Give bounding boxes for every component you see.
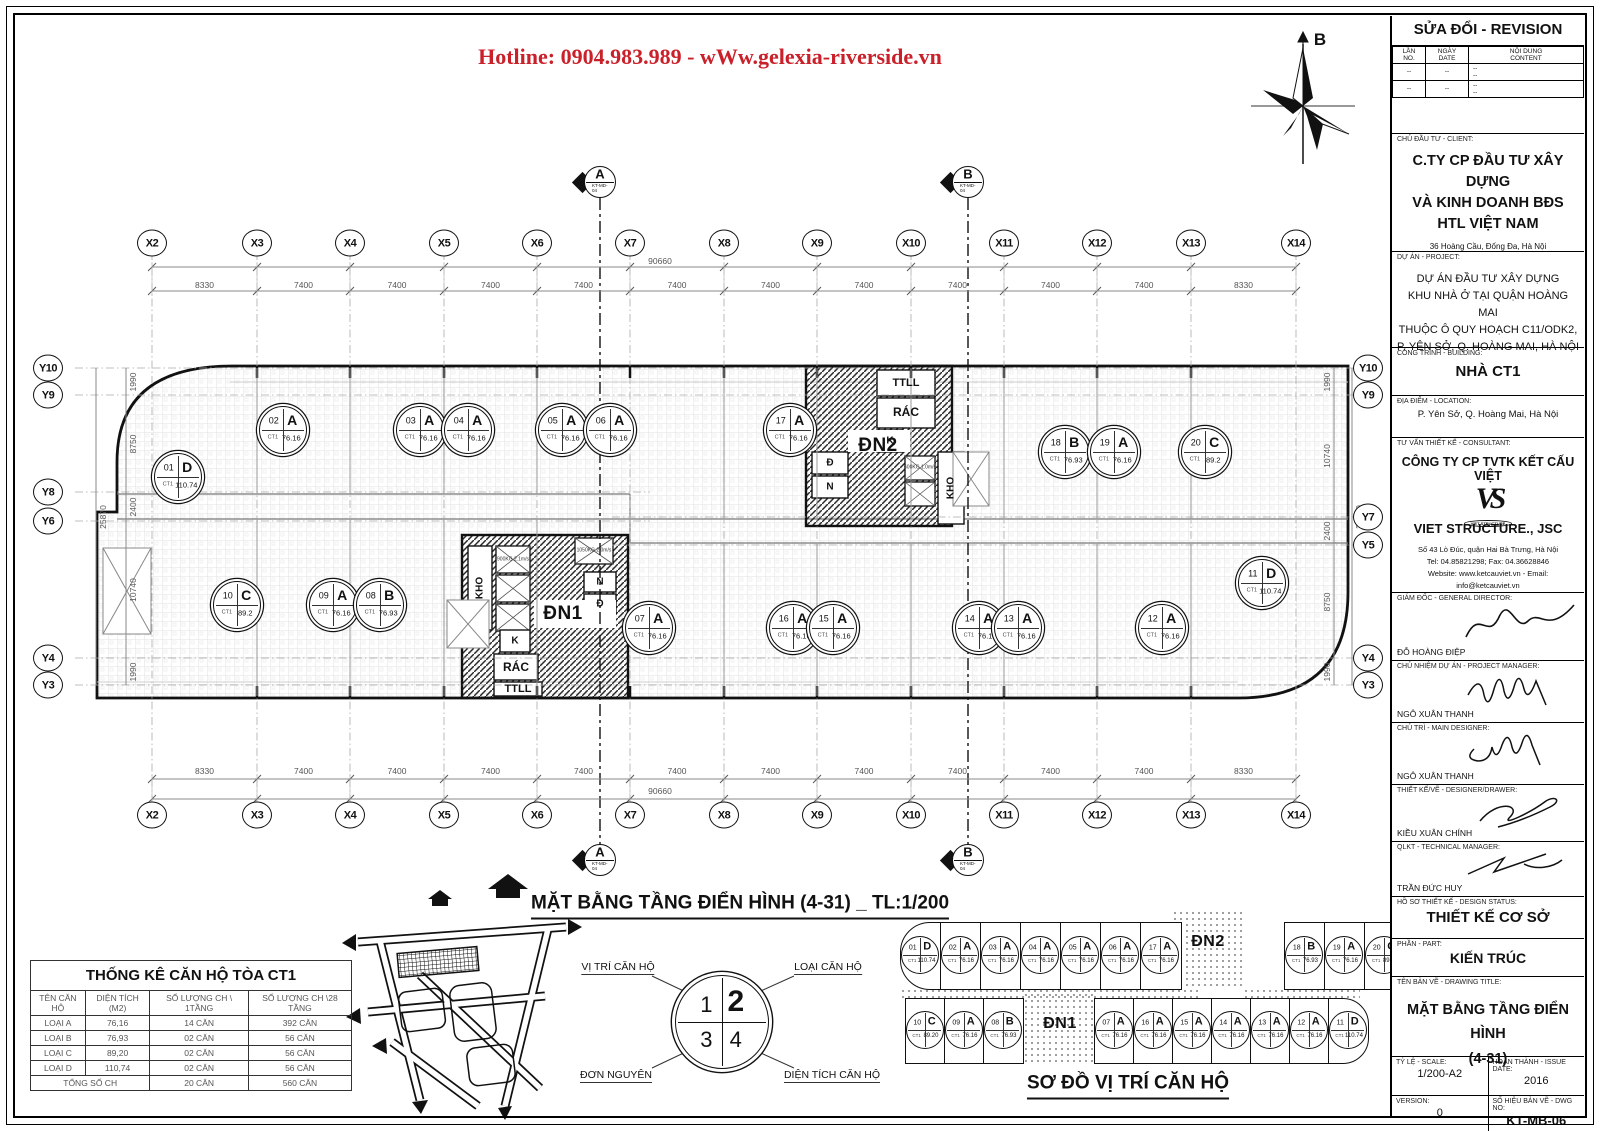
dim-y-right: 8750: [1322, 592, 1332, 611]
dim-y-left: 1990: [128, 662, 138, 681]
unit-u-ct: CT1: [1101, 1034, 1110, 1039]
client-line1: C.TY CP ĐẦU TƯ XÂY DỰNG: [1397, 151, 1579, 193]
unit-u-ty: A: [1195, 1017, 1203, 1028]
grid-bubble-X14-bottom: X14: [1281, 802, 1311, 829]
drawer-section: THIẾT KẾ/VẼ - DESIGNER/DRAWER: KIỀU XUÂN…: [1392, 785, 1584, 842]
unit-u-no: 01: [164, 463, 174, 472]
unit-u-ct: CT1: [634, 634, 644, 640]
unit-u-ct: CT1: [1148, 959, 1157, 964]
dim-x-top: 7400: [388, 280, 407, 290]
dim-x-bottom: 7400: [481, 766, 500, 776]
plan-title: MẶT BẰNG TẦNG ĐIỂN HÌNH (4-31) _ TL:1/20…: [531, 893, 949, 920]
designer-name: NGÔ XUÂN THANH: [1397, 771, 1474, 781]
legend-q2: 2: [727, 985, 744, 1019]
unit-u-ar: 76.16: [1307, 1033, 1322, 1039]
drawing-sheet: Hotline: 0904.983.989 - wWw.gelexia-rive…: [0, 0, 1600, 1131]
grid-bubble-X9-top: X9: [802, 230, 832, 257]
dim-x-top: 7400: [294, 280, 313, 290]
dim-y-right: 1990: [1322, 662, 1332, 681]
grid-bubble-X3-bottom: X3: [242, 802, 272, 829]
unit-u-no: 20: [1373, 944, 1381, 951]
dim-x-top: 7400: [1135, 280, 1154, 290]
grid-bubble-X7-top: X7: [615, 230, 645, 257]
unit-u-ty: D: [182, 460, 192, 474]
unit-u-no: 15: [819, 614, 829, 623]
grid-bubble-X6-top: X6: [522, 230, 552, 257]
pm-section: CHỦ NHIỆM DỰ ÁN - PROJECT MANAGER: NGÔ X…: [1392, 661, 1584, 723]
unit-u-ar: 89.2: [238, 610, 253, 618]
unit-u-ty: A: [337, 588, 347, 602]
unit-u-ct: CT1: [453, 436, 463, 442]
dim-x-bottom: 7400: [574, 766, 593, 776]
unit-circle-03: 03ACT176.16: [396, 406, 444, 454]
unit-u-no: 16: [1141, 1019, 1149, 1026]
grid-bubble-X8-bottom: X8: [709, 802, 739, 829]
dim-x-top: 7400: [668, 280, 687, 290]
grid-bubble-X8-top: X8: [709, 230, 739, 257]
unit-circle-10: 10CCT189.20: [906, 1011, 944, 1049]
unit-u-no: 02: [269, 416, 279, 425]
unit-u-ar: 76.16: [1343, 958, 1358, 964]
drawer-name: KIỀU XUÂN CHÍNH: [1397, 828, 1472, 838]
room-ttll-dn2: TTLL: [893, 377, 920, 389]
grid-bubble-X10-bottom: X10: [896, 802, 926, 829]
unit-u-ty: A: [963, 942, 971, 953]
unit-u-ar: 76.16: [1112, 1033, 1127, 1039]
director-section: GIÁM ĐỐC - GENERAL DIRECTOR: ĐỖ HOÀNG ĐI…: [1392, 593, 1584, 661]
dim-x-top: 7400: [948, 280, 967, 290]
lift-label-dn2: 600KG 1.0m/s: [904, 465, 936, 471]
locdgm-dn2-label: ĐN2: [1191, 933, 1225, 951]
revision-table: LẦNNO. NGÀYDATE NỘI DUNGCONTENT ---- ---…: [1392, 46, 1584, 98]
dim-x-top: 8330: [1234, 280, 1253, 290]
unit-circle-12: 12ACT176.16: [1138, 604, 1186, 652]
unit-u-no: 11: [1337, 1019, 1344, 1026]
unit-u-ty: A: [1163, 942, 1171, 953]
unit-circle-13: 13ACT176.16: [994, 604, 1042, 652]
unit-u-ar: 76.16: [419, 435, 438, 443]
unit-u-ty: A: [1083, 942, 1091, 953]
unit-circle-09: 09ACT176.16: [945, 1011, 983, 1049]
unit-u-ar: 76.16: [1229, 1033, 1244, 1039]
unit-u-ar: 76.16: [1079, 958, 1094, 964]
section-marker-B: BKT-MD-04: [952, 844, 984, 876]
unit-u-ty: A: [287, 413, 297, 427]
unit-u-no: 03: [406, 416, 416, 425]
unit-u-ar: 76.93: [1001, 1033, 1016, 1039]
dim-x-bottom: 8330: [1234, 766, 1253, 776]
grid-bubble-Y10-left: Y10: [33, 355, 63, 382]
unit-u-ty: B: [1069, 435, 1079, 449]
signature-director: [1460, 601, 1580, 645]
unit-circle-16: 16ACT176.16: [1134, 1011, 1172, 1049]
unit-u-ty: A: [614, 413, 624, 427]
unit-circle-02: 02ACT176.16: [259, 406, 307, 454]
grid-bubble-X2-top: X2: [137, 230, 167, 257]
unit-u-ct: CT1: [1292, 959, 1301, 964]
unit-u-ct: CT1: [1332, 959, 1341, 964]
compass-north-label: B: [1314, 30, 1326, 50]
legend-q1: 1: [700, 992, 712, 1018]
unit-u-no: 14: [1219, 1019, 1227, 1026]
grid-bubble-X13-bottom: X13: [1176, 802, 1206, 829]
grid-bubble-Y4-right: Y4: [1353, 645, 1383, 672]
unit-u-ar: 76.16: [1017, 633, 1036, 641]
legend-label-unit: ĐƠN NGUYÊN: [580, 1069, 652, 1083]
room-kho-dn1: KHO: [475, 577, 486, 599]
signature-designer: [1460, 731, 1580, 771]
grid-bubble-Y10-right: Y10: [1353, 355, 1383, 382]
unit-u-ty: D: [1266, 566, 1276, 580]
unit-u-ct: CT1: [778, 634, 788, 640]
unit-u-ar: 110.74: [1259, 588, 1281, 596]
unit-u-ar: 76.16: [648, 633, 667, 641]
unit-circle-19: 19ACT176.16: [1090, 428, 1138, 476]
room-kho-dn2: KHO: [946, 477, 957, 499]
unit-u-no: 18: [1293, 944, 1301, 951]
unit-u-ct: CT1: [1099, 458, 1109, 464]
unit-u-ty: A: [794, 413, 804, 427]
locdgm-dn1-label: ĐN1: [1043, 1015, 1077, 1033]
unit-u-ty: A: [1117, 1017, 1125, 1028]
section-marker-B: BKT-MD-04: [952, 166, 984, 198]
unit-u-ar: 89.20: [923, 1033, 938, 1039]
unit-u-ty: C: [928, 1017, 936, 1028]
unit-u-ar: 76.16: [332, 610, 351, 618]
stats-row: LOẠI D110,7402 CĂN56 CĂN: [31, 1061, 352, 1076]
grid-bubble-Y7-right: Y7: [1353, 504, 1383, 531]
unit-u-ar: 76.16: [1268, 1033, 1283, 1039]
unit-u-ar: 76.16: [1039, 958, 1054, 964]
stats-row: LOẠI B76,9302 CĂN56 CĂN: [31, 1031, 352, 1046]
dim-x-bottom: 7400: [388, 766, 407, 776]
unit-u-ct: CT1: [948, 959, 957, 964]
title-block: SỬA ĐỔI - REVISION LẦNNO. NGÀYDATE NỘI D…: [1390, 16, 1584, 1116]
dim-x-bottom: 7400: [948, 766, 967, 776]
unit-u-ct: CT1: [318, 611, 328, 617]
pm-name: NGÔ XUÂN THANH: [1397, 709, 1474, 719]
unit-u-ar: 76.93: [1303, 958, 1318, 964]
unit-circle-10: 10CCT189.2: [213, 581, 261, 629]
unit-u-no: 11: [1248, 569, 1257, 578]
unit-circle-02: 02ACT176.16: [941, 936, 979, 974]
signature-pm: [1460, 669, 1580, 709]
unit-circle-19: 19ACT176.16: [1325, 936, 1363, 974]
unit-u-ar: 110.74: [175, 482, 197, 490]
unit-u-ty: A: [566, 413, 576, 427]
unit-u-no: 07: [1102, 1019, 1110, 1026]
room-ttll-dn1: TTLL: [505, 683, 532, 695]
signature-qlkt: [1460, 850, 1580, 884]
unit-u-ty: C: [1209, 435, 1219, 449]
unit-circle-18: 18BCT176.93: [1041, 428, 1089, 476]
unit-u-ct: CT1: [1247, 589, 1257, 595]
main-designer-section: CHỦ TRÌ - MAIN DESIGNER: NGÔ XUÂN THANH: [1392, 723, 1584, 785]
unit-u-ct: CT1: [1140, 1034, 1149, 1039]
unit-u-no: 12: [1148, 614, 1158, 623]
unit-u-ty: A: [1347, 942, 1355, 953]
unit-circle-20: 20CCT189.2: [1181, 428, 1229, 476]
apartment-stats-table: THỐNG KÊ CĂN HỘ TÒA CT1 TÊN CĂN HỘDIỆN T…: [30, 960, 352, 1091]
unit-circle-05: 05ACT176.16: [538, 406, 586, 454]
legend-label-type: LOẠI CĂN HỘ: [794, 961, 862, 975]
dim-y-right: 1990: [1322, 372, 1332, 391]
dim-x-bottom: 7400: [668, 766, 687, 776]
unit-u-ct: CT1: [1335, 1034, 1344, 1039]
unit-u-ty: A: [653, 611, 663, 625]
revision-title: SỬA ĐỔI - REVISION: [1392, 16, 1584, 46]
grid-bubble-Y5-right: Y5: [1353, 532, 1383, 559]
unit-u-no: 18: [1051, 438, 1061, 447]
unit-u-no: 10: [223, 591, 233, 600]
unit-u-ct: CT1: [1050, 458, 1060, 464]
dim-y-right: 2400: [1322, 522, 1332, 541]
unit-u-ty: B: [384, 588, 394, 602]
unit-u-no: 17: [776, 416, 786, 425]
unit-u-no: 06: [596, 416, 606, 425]
core-dn1-label: ĐN1: [543, 603, 583, 625]
grid-bubble-Y8-left: Y8: [33, 479, 63, 506]
unit-circle-15: 15ACT176.16: [809, 604, 857, 652]
client-section: CHỦ ĐẦU TƯ - CLIENT: C.TY CP ĐẦU TƯ XÂY …: [1392, 134, 1584, 252]
unit-circle-17: 17ACT176.16: [1141, 936, 1179, 974]
unit-circle-17: 17ACT176.16: [766, 406, 814, 454]
signature-drawer: [1460, 793, 1580, 829]
unit-circle-01: 01DCT1110.74: [901, 936, 939, 974]
version-dwg-row: VERSION: 0 SỐ HIỆU BẢN VẼ - DWG NO: KT-M…: [1392, 1096, 1584, 1131]
unit-u-no: 01: [909, 944, 917, 951]
unit-u-ct: CT1: [1372, 959, 1381, 964]
lift-label-dn1: 900KG 2.1m/s: [497, 557, 529, 563]
dim-x-total-bottom: 90660: [648, 786, 672, 796]
qlkt-section: QLKT - TECHNICAL MANAGER: TRẦN ĐỨC HUY: [1392, 842, 1584, 897]
grid-bubble-X2-bottom: X2: [137, 802, 167, 829]
unit-u-ar: 76.16: [1190, 1033, 1205, 1039]
unit-u-ct: CT1: [1003, 634, 1013, 640]
unit-u-ar: 76.16: [832, 633, 851, 641]
dim-x-total-top: 90660: [648, 256, 672, 266]
unit-u-ar: 110.74: [1345, 1033, 1363, 1039]
section-marker-A: AKT-MD-04: [584, 844, 616, 876]
unit-u-ct: CT1: [365, 611, 375, 617]
location-section: ĐỊA ĐIỂM - LOCATION: P. Yên Sở, Q. Hoàng…: [1392, 396, 1584, 438]
unit-u-ar: 76.16: [609, 435, 628, 443]
unit-u-no: 05: [1069, 944, 1077, 951]
unit-circle-04: 04ACT176.16: [1021, 936, 1059, 974]
unit-circle-05: 05ACT176.16: [1061, 936, 1099, 974]
unit-circle-06: 06ACT176.16: [586, 406, 634, 454]
room-n-dn1: N: [596, 577, 603, 588]
director-name: ĐỖ HOÀNG ĐIỆP: [1397, 647, 1465, 657]
grid-bubble-X9-bottom: X9: [802, 802, 832, 829]
grid-bubble-X3-top: X3: [242, 230, 272, 257]
project-section: DỰ ÁN - PROJECT: DỰ ÁN ĐẦU TƯ XÂY DỰNG K…: [1392, 252, 1584, 348]
section-marker-A: AKT-MD-04: [584, 166, 616, 198]
unit-u-ar: 76.16: [467, 435, 486, 443]
legend-label-position: VỊ TRÍ CĂN HỘ: [581, 961, 654, 975]
unit-u-ar: 76.93: [1064, 457, 1083, 465]
unit-u-ct: CT1: [163, 483, 173, 489]
dim-x-top: 7400: [855, 280, 874, 290]
unit-u-ty: A: [797, 611, 807, 625]
unit-u-no: 05: [548, 416, 558, 425]
grid-bubble-X6-bottom: X6: [522, 802, 552, 829]
unit-u-ty: A: [1003, 942, 1011, 953]
unit-u-ty: A: [1118, 435, 1128, 449]
unit-u-ct: CT1: [818, 634, 828, 640]
unit-u-ty: A: [1156, 1017, 1164, 1028]
stats-header-row: TÊN CĂN HỘDIỆN TÍCH (M2)SỐ LƯỢNG CH \ 1T…: [31, 991, 352, 1016]
legend-q3: 3: [700, 1027, 712, 1053]
qlkt-name: TRẦN ĐỨC HUY: [1397, 883, 1462, 893]
dim-x-bottom: 7400: [761, 766, 780, 776]
unit-circle-12: 12ACT176.16: [1290, 1011, 1328, 1049]
unit-u-ar: 76.16: [792, 633, 811, 641]
building-name: NHÀ CT1: [1397, 363, 1579, 380]
unit-circle-11: 11DCT1110.74: [1329, 1011, 1367, 1049]
grid-bubble-X12-bottom: X12: [1082, 802, 1112, 829]
unit-circle-07: 07ACT176.16: [625, 604, 673, 652]
part-section: PHẦN - PART: KIẾN TRÚC: [1392, 939, 1584, 977]
dim-y-total-left: 25870: [98, 505, 108, 529]
dim-y-left: 8750: [128, 434, 138, 453]
grid-bubble-X14-top: X14: [1281, 230, 1311, 257]
unit-u-ct: CT1: [990, 1034, 999, 1039]
unit-u-ct: CT1: [405, 436, 415, 442]
room-rac-dn2: RÁC: [893, 405, 919, 419]
room-rac-dn1: RÁC: [503, 660, 529, 674]
hotline-banner: Hotline: 0904.983.989 - wWw.gelexia-rive…: [320, 44, 1100, 70]
client-line3: HTL VIỆT NAM: [1397, 214, 1579, 235]
unit-u-ct: CT1: [1108, 959, 1117, 964]
unit-u-ct: CT1: [1218, 1034, 1227, 1039]
unit-u-ar: 76.16: [959, 958, 974, 964]
drawing-title-section: TÊN BẢN VẼ - DRAWING TITLE: MẶT BẰNG TẦN…: [1392, 977, 1584, 1057]
unit-u-no: 12: [1297, 1019, 1305, 1026]
unit-u-ty: A: [1234, 1017, 1242, 1028]
unit-u-no: 19: [1333, 944, 1341, 951]
room-k-dn1: K: [511, 636, 518, 647]
unit-u-ct: CT1: [1190, 458, 1200, 464]
unit-u-ty: A: [424, 413, 434, 427]
unit-u-ar: 76.16: [1113, 457, 1132, 465]
unit-u-no: 08: [366, 591, 376, 600]
unit-u-no: 13: [1004, 614, 1014, 623]
unit-u-ar: 76.16: [962, 1033, 977, 1039]
dim-x-top: 8330: [195, 280, 214, 290]
unit-u-no: 19: [1100, 438, 1110, 447]
unit-circle-01: 01DCT1110.74: [154, 453, 202, 501]
unit-u-ty: A: [837, 611, 847, 625]
dim-x-bottom: 7400: [855, 766, 874, 776]
unit-u-no: 16: [779, 614, 789, 623]
unit-u-ct: CT1: [908, 959, 917, 964]
room-k-dn2: K: [886, 436, 893, 447]
grid-bubble-Y9-left: Y9: [33, 382, 63, 409]
stats-title: THỐNG KÊ CĂN HỘ TÒA CT1: [31, 961, 352, 991]
unit-circle-06: 06ACT176.16: [1101, 936, 1139, 974]
unit-u-ty: A: [1022, 611, 1032, 625]
unit-u-ar: 76.16: [282, 435, 301, 443]
unit-u-ty: B: [1006, 1017, 1014, 1028]
legend-q4: 4: [730, 1027, 742, 1053]
unit-u-no: 17: [1149, 944, 1157, 951]
unit-circle-04: 04ACT176.16: [444, 406, 492, 454]
unit-circle-15: 15ACT176.16: [1173, 1011, 1211, 1049]
dim-y-left: 2400: [128, 497, 138, 516]
unit-u-ar: 76.16: [1159, 958, 1174, 964]
unit-u-ct: CT1: [1179, 1034, 1188, 1039]
legend-circle: 1 2 3 4: [675, 975, 769, 1069]
grid-bubble-Y3-right: Y3: [1353, 672, 1383, 699]
unit-u-ar: 76.16: [1151, 1033, 1166, 1039]
unit-u-no: 10: [913, 1019, 921, 1026]
grid-bubble-X4-top: X4: [335, 230, 365, 257]
unit-u-no: 20: [1191, 438, 1201, 447]
building-section: CÔNG TRÌNH - BUILDING: NHÀ CT1: [1392, 348, 1584, 396]
unit-u-ct: CT1: [1028, 959, 1037, 964]
unit-u-ty: A: [1312, 1017, 1320, 1028]
dim-y-left: 10740: [128, 578, 138, 602]
unit-circle-14: 14ACT176.16: [1212, 1011, 1250, 1049]
grid-bubble-X4-bottom: X4: [335, 802, 365, 829]
unit-u-ty: C: [241, 588, 251, 602]
unit-u-no: 03: [989, 944, 997, 951]
unit-u-no: 06: [1109, 944, 1117, 951]
unit-circle-07: 07ACT176.16: [1095, 1011, 1133, 1049]
unit-u-ty: A: [1273, 1017, 1281, 1028]
unit-u-no: 04: [1029, 944, 1037, 951]
unit-circle-03: 03ACT176.16: [981, 936, 1019, 974]
unit-u-ct: CT1: [912, 1034, 921, 1039]
unit-u-ar: 76.16: [1119, 958, 1134, 964]
unit-u-ty: A: [1043, 942, 1051, 953]
unit-u-ct: CT1: [268, 436, 278, 442]
unit-u-ct: CT1: [988, 959, 997, 964]
client-line2: VÀ KINH DOANH BĐS: [1397, 193, 1579, 214]
unit-u-ty: A: [983, 611, 993, 625]
grid-bubble-X10-top: X10: [896, 230, 926, 257]
stats-row: LOẠI A76,1614 CĂN392 CĂN: [31, 1016, 352, 1031]
dim-x-bottom: 7400: [1041, 766, 1060, 776]
dim-x-top: 7400: [1041, 280, 1060, 290]
dim-x-top: 7400: [574, 280, 593, 290]
unit-u-ct: CT1: [964, 634, 974, 640]
locdgm-title: SƠ ĐỒ VỊ TRÍ CĂN HỘ: [1027, 1073, 1229, 1100]
unit-u-ct: CT1: [775, 436, 785, 442]
unit-u-ct: CT1: [1068, 959, 1077, 964]
unit-u-ar: 76.16: [561, 435, 580, 443]
unit-u-ct: CT1: [547, 436, 557, 442]
unit-u-ar: 76.16: [999, 958, 1014, 964]
status-section: HỒ SƠ THIẾT KẾ - DESIGN STATUS: THIẾT KẾ…: [1392, 897, 1584, 939]
grid-bubble-X7-bottom: X7: [615, 802, 645, 829]
unit-u-ty: D: [923, 942, 931, 953]
dim-x-bottom: 7400: [294, 766, 313, 776]
grid-bubble-Y6-left: Y6: [33, 508, 63, 535]
grid-bubble-X13-top: X13: [1176, 230, 1206, 257]
unit-u-no: 04: [454, 416, 464, 425]
unit-u-ar: 76.16: [1161, 633, 1180, 641]
unit-u-ct: CT1: [222, 611, 232, 617]
room-d-dn1: Đ: [596, 599, 603, 610]
unit-circle-13: 13ACT176.16: [1251, 1011, 1289, 1049]
unit-circle-09: 09ACT176.16: [309, 581, 357, 629]
unit-u-no: 13: [1258, 1019, 1266, 1026]
unit-u-ar: 76.93: [379, 610, 398, 618]
unit-circle-11: 11DCT1110.74: [1238, 559, 1286, 607]
unit-u-ct: CT1: [1257, 1034, 1266, 1039]
